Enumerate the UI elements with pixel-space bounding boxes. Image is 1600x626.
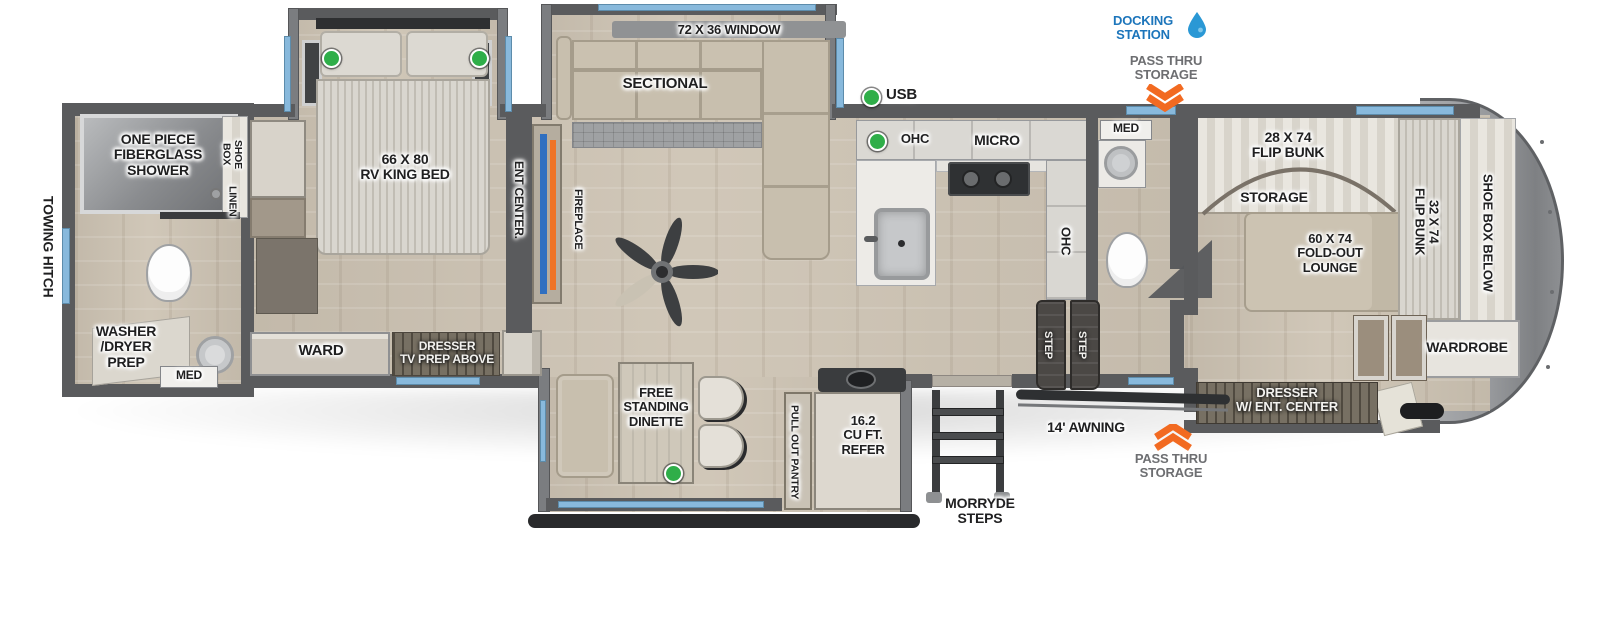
bed-headboard (316, 18, 490, 29)
dinette-bench (556, 374, 614, 478)
pass-thru-bottom-label: PASS THRU STORAGE (1116, 452, 1226, 481)
dinette-slide-rail (528, 514, 920, 528)
bedroom-closet-upper (250, 120, 306, 198)
pantry-label: PULL OUT PANTRY (788, 398, 800, 506)
dinette-chair-bottom (698, 424, 744, 468)
midbath-right-wall-upper (1170, 117, 1184, 269)
rv-floorplan: USB DOCKING STATION PASS THRU STORAGE PA… (0, 0, 1600, 626)
bedroom-dresser-label: DRESSER TV PREP ABOVE (392, 340, 502, 366)
midbath-toilet (1106, 232, 1148, 288)
morryde-steps-rail-left (932, 390, 940, 496)
usb-dot-bed-right (470, 49, 489, 68)
morryde-step-3 (932, 456, 1004, 464)
king-bed-label: 66 X 80 RV KING BED (330, 152, 480, 183)
flip-bunk-28-label: 28 X 74 FLIP BUNK (1228, 130, 1348, 161)
sectional-slide-left-wall (541, 4, 552, 120)
ent-center-label: ENT CENTER. (512, 140, 525, 260)
living-side-window (836, 38, 844, 108)
step-left-label: STEP (1042, 314, 1054, 376)
bedroom-bottom-window (396, 377, 480, 385)
usb-legend-label: USB (886, 87, 936, 104)
step-right-label: STEP (1076, 314, 1088, 376)
cooktop-burner-right (994, 170, 1012, 188)
kitchen-faucet-icon (864, 236, 878, 242)
chevron-up-icon (1152, 424, 1194, 452)
shoe-box-below-label: SHOE BOX BELOW (1480, 148, 1494, 318)
wardrobe-label: WARDROBE (1418, 340, 1516, 355)
front-cap-rivets (1540, 140, 1544, 144)
rear-toilet (146, 244, 192, 302)
shower-drain-icon (210, 188, 222, 200)
bedroom-tv-panel (256, 238, 318, 314)
bedroom-steps (502, 330, 542, 376)
shower-label: ONE PIECE FIBERGLASS SHOWER (90, 132, 226, 178)
dresser-ent-center-label: DRESSER W/ ENT. CENTER (1202, 386, 1372, 415)
shoe-box-label: SHOE BOX (220, 122, 243, 186)
morryde-step-2 (932, 432, 1004, 440)
midbath-right-wall-lower (1170, 300, 1184, 376)
front-wall-upper (1184, 117, 1198, 315)
entry-door-threshold (932, 375, 1012, 387)
kitchen-sink-drain (898, 240, 905, 247)
morryde-steps-label: MORRYDE STEPS (918, 496, 1042, 527)
front-top-window (1356, 106, 1454, 115)
front-cabinet-left (1354, 316, 1388, 380)
usb-dot-dinette (664, 464, 683, 483)
washer-dryer-label: WASHER /DRYER PREP (80, 324, 172, 370)
flip-bunk-32-label: 32 X 74 FLIP BUNK (1412, 152, 1441, 292)
sectional-armrest (556, 36, 572, 120)
fireplace-icon (550, 140, 556, 290)
bedroom-closet-lower (250, 198, 306, 238)
window-72x36-label: 72 X 36 WINDOW (616, 23, 842, 37)
ohc-side-label: OHC (1058, 212, 1072, 270)
sectional-chaise (762, 40, 830, 260)
usb-legend-dot-icon (862, 88, 881, 107)
dinette-chair-top (698, 376, 744, 420)
water-drop-icon (1188, 12, 1206, 38)
rear-med-label: MED (162, 369, 216, 382)
midbath-med-label: MED (1100, 122, 1152, 135)
fireplace-label: FIREPLACE (572, 164, 584, 274)
usb-dot-kitchen (868, 132, 887, 151)
cooktop-burner-left (962, 170, 980, 188)
king-slide-window-left (284, 36, 291, 112)
landing-gear-leg (1400, 403, 1444, 419)
rear-left-window (62, 228, 70, 304)
awning-label: 14' AWNING (1026, 420, 1146, 435)
morryde-step-1 (932, 408, 1004, 416)
bottom-wall-a (245, 374, 538, 388)
cooktop-icon (948, 162, 1030, 196)
towing-hitch-label: TOWING HITCH (40, 152, 55, 342)
pass-thru-top-label: PASS THRU STORAGE (1116, 54, 1216, 83)
dinette-label: FREE STANDING DINETTE (614, 386, 698, 429)
sofa-table (572, 122, 762, 148)
linen-label: LINEN (226, 178, 238, 224)
tv-icon (540, 134, 547, 294)
chevron-down-icon (1144, 84, 1186, 112)
midbath-sink-icon (1104, 146, 1138, 180)
refer-vent-fan (846, 370, 876, 389)
sectional-slide-window (598, 4, 816, 11)
docking-station-label: DOCKING STATION (1100, 14, 1186, 43)
dinette-slide-window-left (540, 400, 546, 462)
bottom-window (1128, 377, 1174, 385)
ohc-top-label: OHC (890, 132, 940, 146)
ent-center-cabinet (532, 124, 562, 304)
storage-label: STORAGE (1222, 190, 1326, 205)
dinette-slide-bottom-window (558, 501, 764, 508)
ceiling-fan-icon (606, 216, 718, 328)
lounge-label: 60 X 74 FOLD-OUT LOUNGE (1270, 232, 1390, 275)
king-slide-window-right (505, 36, 512, 112)
midbath-left-wall (1086, 117, 1098, 307)
morryde-steps-rail-right (996, 390, 1004, 496)
ward-label: WARD (276, 343, 366, 360)
micro-label: MICRO (958, 133, 1036, 148)
sectional-label: SECTIONAL (590, 76, 740, 93)
usb-dot-bed-left (322, 49, 341, 68)
refer-label: 16.2 CU FT. REFER (824, 414, 902, 457)
